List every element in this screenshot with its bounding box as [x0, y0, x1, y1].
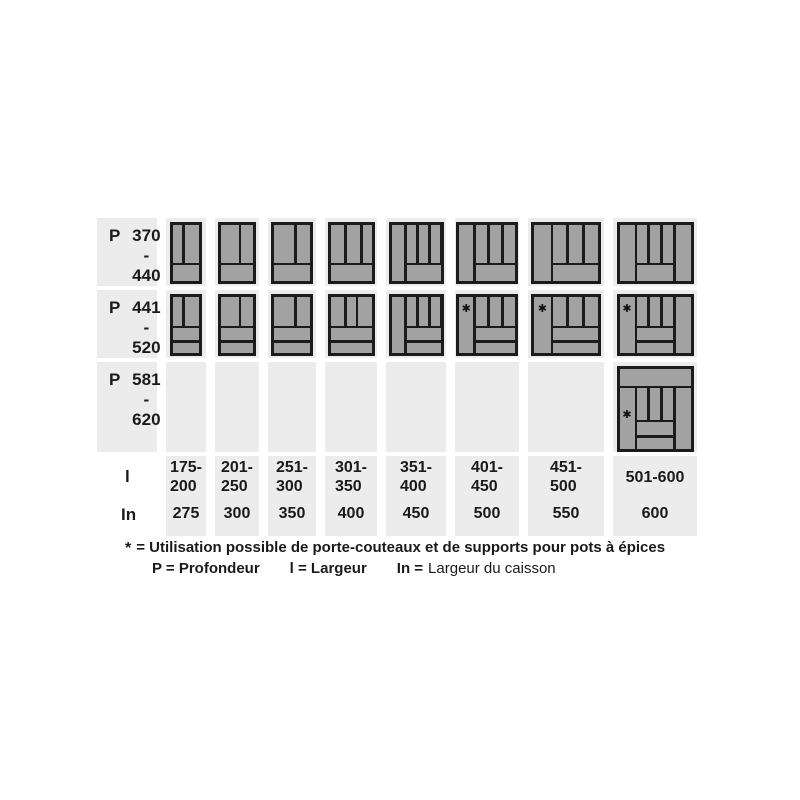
- legend-term: l = Largeur: [290, 560, 367, 577]
- tray-vertical-compartments: [476, 297, 515, 326]
- tray-bottom-compartment: [637, 265, 673, 281]
- tray-compartment: [241, 297, 253, 326]
- tray-compartment: [221, 225, 239, 263]
- asterisk-marker: *: [125, 540, 131, 557]
- dimension-cell: 351-400450: [386, 456, 446, 536]
- tray-compartment: [347, 297, 356, 326]
- dimension-row-labels: lIn: [97, 456, 157, 536]
- tray-body: [459, 225, 515, 281]
- tray-body: [274, 297, 310, 353]
- tray-middle-section: [221, 225, 253, 281]
- cutlery-tray-diagram: [617, 222, 694, 284]
- depth-values: 370-440: [130, 226, 162, 286]
- tray-compartment: [663, 388, 673, 419]
- catalog-page: P370-440P441-520✱✱✱P581-620✱lIn175-20027…: [0, 0, 800, 800]
- depth-value-line: -: [130, 318, 162, 338]
- tray-bottom-compartment: [637, 422, 673, 435]
- cabinet-width-row-label: In: [121, 505, 136, 525]
- cutlery-tray-diagram: ✱: [617, 366, 694, 452]
- tray-compartment: [419, 297, 429, 326]
- legend-term: P = Profondeur: [152, 560, 260, 577]
- dimension-cell: 175-200275: [166, 456, 206, 536]
- tray-body: ✱: [620, 388, 691, 449]
- cutlery-tray-diagram: [271, 222, 313, 284]
- tray-compartment: [476, 297, 487, 326]
- footnote: *= Utilisation possible de porte-couteau…: [125, 539, 665, 558]
- tray-compartment: [407, 297, 417, 326]
- tray-body: [274, 225, 310, 281]
- table-cell: [268, 218, 316, 286]
- tray-compartment: [490, 297, 501, 326]
- tray-middle-section: [173, 225, 199, 281]
- legend-term: In =: [397, 560, 423, 577]
- depth-prefix-label: P: [109, 370, 120, 390]
- cutlery-tray-diagram: ✱: [531, 294, 601, 356]
- tray-middle-section: [331, 225, 372, 281]
- tray-vertical-compartments: [331, 225, 372, 263]
- dimension-cell: 451-500550: [528, 456, 604, 536]
- tray-left-column-compartment: [459, 225, 473, 281]
- table-cell: [325, 362, 377, 452]
- tray-compartment: [331, 225, 345, 263]
- tray-vertical-compartments: [407, 297, 441, 326]
- width-range-text: 351-400: [400, 458, 432, 496]
- tray-bottom-compartment: [476, 328, 515, 340]
- tray-body: [173, 297, 199, 353]
- tray-compartment: [297, 297, 310, 326]
- tray-compartment: [663, 225, 673, 263]
- tray-middle-section: [274, 297, 310, 353]
- tray-middle-section: [476, 225, 515, 281]
- cutlery-tray-diagram: ✱: [617, 294, 694, 356]
- tray-bottom-compartment: [553, 328, 598, 340]
- table-cell: [386, 218, 446, 286]
- cabinet-width-value: 600: [613, 505, 697, 523]
- tray-compartment: [185, 297, 199, 326]
- tray-compartment: [585, 225, 598, 263]
- legend-entry: In =Largeur du caisson: [397, 560, 556, 577]
- tray-bottom-compartment: [637, 343, 673, 353]
- tray-body: ✱: [459, 297, 515, 353]
- tray-bottom-compartment: [637, 328, 673, 340]
- depth-value-line: 620: [130, 410, 162, 430]
- tray-compartment: [585, 297, 598, 326]
- tray-compartment: [569, 225, 582, 263]
- cutlery-tray-diagram: ✱: [456, 294, 518, 356]
- cutlery-tray-diagram: [170, 294, 202, 356]
- tray-vertical-compartments: [274, 297, 310, 326]
- cabinet-width-value: 275: [166, 505, 206, 523]
- tray-middle-section: [637, 297, 673, 353]
- tray-vertical-compartments: [331, 297, 372, 326]
- cutlery-tray-size-table: P370-440P441-520✱✱✱P581-620✱lIn175-20027…: [97, 218, 697, 536]
- dimension-cell: 301-350400: [325, 456, 377, 536]
- tray-compartment: [297, 225, 310, 263]
- table-cell: [166, 218, 206, 286]
- depth-range-label: P441-520: [97, 290, 157, 358]
- knife-holder-asterisk-icon: ✱: [620, 409, 635, 420]
- dimension-cell: 201-250300: [215, 456, 259, 536]
- tray-middle-section: [476, 297, 515, 353]
- width-range-text: 251-300: [276, 458, 308, 496]
- tray-vertical-compartments: [476, 225, 515, 263]
- tray-bottom-compartment: [407, 265, 441, 281]
- table-cell: [268, 362, 316, 452]
- tray-middle-section: [553, 225, 598, 281]
- depth-value-line: -: [130, 390, 162, 410]
- width-range-value: 251-300: [268, 458, 316, 496]
- cutlery-tray-diagram: [456, 222, 518, 284]
- width-range-text: 501-600: [626, 468, 685, 487]
- tray-body: [620, 225, 691, 281]
- table-cell: [528, 218, 604, 286]
- tray-body: [392, 225, 441, 281]
- tray-bottom-compartment: [173, 328, 199, 340]
- tray-bottom-compartment: [553, 343, 598, 353]
- tray-compartment: [504, 297, 515, 326]
- tray-vertical-compartments: [173, 225, 199, 263]
- tray-right-column-compartment: [676, 297, 691, 353]
- tray-vertical-compartments: [553, 297, 598, 326]
- tray-body: [331, 225, 372, 281]
- cabinet-width-value: 350: [268, 505, 316, 523]
- width-range-value: 501-600: [613, 468, 697, 487]
- tray-compartment: [358, 297, 372, 326]
- tray-compartment: [363, 225, 372, 263]
- cutlery-tray-diagram: [170, 222, 202, 284]
- tray-compartment: [504, 225, 515, 263]
- tray-bottom-compartment: [331, 343, 372, 353]
- width-range-value: 175-200: [166, 458, 206, 496]
- tray-compartment: [347, 225, 361, 263]
- width-range-value: 201-250: [215, 458, 259, 496]
- tray-bottom-compartment: [331, 328, 372, 340]
- tray-compartment: [173, 225, 182, 263]
- depth-value-line: 441: [130, 298, 162, 318]
- cutlery-tray-diagram: [218, 222, 256, 284]
- tray-compartment: [173, 297, 182, 326]
- tray-left-column-compartment: ✱: [534, 297, 551, 353]
- tray-bottom-compartment: [221, 328, 253, 340]
- tray-compartment: [185, 225, 199, 263]
- tray-compartment: [490, 225, 501, 263]
- cutlery-tray-diagram: [389, 222, 444, 284]
- cutlery-tray-diagram: [328, 294, 375, 356]
- knife-holder-asterisk-icon: ✱: [459, 303, 473, 314]
- tray-bottom-compartment: [407, 343, 441, 353]
- tray-middle-section: [637, 388, 673, 449]
- width-range-text: 401-450: [471, 458, 503, 496]
- table-cell: ✱: [613, 362, 697, 452]
- depth-value-line: -: [130, 246, 162, 266]
- tray-left-column-compartment: ✱: [459, 297, 473, 353]
- tray-middle-section: [637, 225, 673, 281]
- tray-top-compartment: [620, 369, 691, 386]
- cabinet-width-value: 300: [215, 505, 259, 523]
- dimension-cell: 401-450500: [455, 456, 519, 536]
- tray-vertical-compartments: [274, 225, 310, 263]
- width-range-value: 401-450: [455, 458, 519, 496]
- tray-left-column-compartment: [534, 225, 551, 281]
- table-cell: [166, 290, 206, 358]
- table-cell: ✱: [455, 290, 519, 358]
- tray-bottom-compartment: [221, 265, 253, 281]
- tray-vertical-compartments: [637, 225, 673, 263]
- table-cell: [528, 362, 604, 452]
- width-range-text: 175-200: [170, 458, 202, 496]
- depth-value-line: 581: [130, 370, 162, 390]
- depth-value-line: 520: [130, 338, 162, 358]
- cutlery-tray-diagram: [328, 222, 375, 284]
- tray-vertical-compartments: [637, 388, 673, 419]
- tray-body: [534, 225, 598, 281]
- legend-entry: l = Largeur: [290, 560, 367, 577]
- tray-vertical-compartments: [637, 297, 673, 326]
- tray-left-column-compartment: ✱: [620, 388, 635, 449]
- width-range-value: 451-500: [528, 458, 604, 496]
- table-cell: [613, 218, 697, 286]
- tray-bottom-compartment: [407, 328, 441, 340]
- tray-body: [221, 297, 253, 353]
- depth-value-line: 440: [130, 266, 162, 286]
- knife-holder-asterisk-icon: ✱: [534, 303, 551, 314]
- tray-left-column-compartment: ✱: [620, 297, 635, 353]
- tray-middle-section: [331, 297, 372, 353]
- footnote-text: = Utilisation possible de porte-couteaux…: [136, 539, 665, 556]
- tray-compartment: [419, 225, 429, 263]
- tray-middle-section: [173, 297, 199, 353]
- width-range-value: 351-400: [386, 458, 446, 496]
- tray-bottom-compartment: [221, 343, 253, 353]
- cabinet-width-value: 500: [455, 505, 519, 523]
- tray-compartment: [221, 297, 239, 326]
- table-cell: ✱: [613, 290, 697, 358]
- legend-entry: P = Profondeur: [152, 560, 260, 577]
- depth-range-label: P581-620: [97, 362, 157, 452]
- tray-vertical-compartments: [173, 297, 199, 326]
- tray-body: [392, 297, 441, 353]
- table-cell: [166, 362, 206, 452]
- tray-middle-section: [407, 297, 441, 353]
- tray-bottom-compartment: [476, 343, 515, 353]
- cabinet-width-value: 400: [325, 505, 377, 523]
- tray-right-column-compartment: [676, 225, 691, 281]
- tray-bottom-compartment: [173, 265, 199, 281]
- tray-compartment: [650, 297, 660, 326]
- cutlery-tray-diagram: [389, 294, 444, 356]
- width-row-label: l: [125, 467, 130, 487]
- depth-prefix-label: P: [109, 226, 120, 246]
- table-cell: [455, 362, 519, 452]
- width-range-text: 201-250: [221, 458, 253, 496]
- depth-prefix-label: P: [109, 298, 120, 318]
- tray-bottom-compartment: [553, 265, 598, 281]
- tray-compartment: [407, 225, 417, 263]
- tray-left-column-compartment: [392, 225, 405, 281]
- tray-body: [331, 297, 372, 353]
- legend: P = Profondeurl = LargeurIn =Largeur du …: [152, 560, 586, 577]
- tray-right-column-compartment: [676, 388, 691, 449]
- tray-vertical-compartments: [553, 225, 598, 263]
- tray-compartment: [431, 225, 441, 263]
- tray-compartment: [637, 388, 647, 419]
- table-cell: ✱: [528, 290, 604, 358]
- tray-compartment: [637, 225, 647, 263]
- tray-bottom-compartment: [274, 265, 310, 281]
- tray-compartment: [331, 297, 345, 326]
- table-cell: [215, 362, 259, 452]
- tray-vertical-compartments: [221, 297, 253, 326]
- tray-bottom-compartment: [331, 265, 372, 281]
- cutlery-tray-diagram: [531, 222, 601, 284]
- tray-compartment: [431, 297, 441, 326]
- tray-left-column-compartment: [392, 297, 405, 353]
- width-range-value: 301-350: [325, 458, 377, 496]
- knife-holder-asterisk-icon: ✱: [620, 303, 635, 314]
- table-cell: [386, 290, 446, 358]
- legend-definition: Largeur du caisson: [428, 560, 556, 577]
- tray-body: ✱: [620, 297, 691, 353]
- tray-compartment: [274, 297, 294, 326]
- tray-compartment: [553, 297, 566, 326]
- table-cell: [455, 218, 519, 286]
- tray-body: [221, 225, 253, 281]
- tray-body: [173, 225, 199, 281]
- cabinet-width-value: 550: [528, 505, 604, 523]
- table-cell: [215, 218, 259, 286]
- tray-compartment: [637, 297, 647, 326]
- tray-compartment: [650, 388, 660, 419]
- tray-bottom-compartment: [274, 343, 310, 353]
- tray-compartment: [569, 297, 582, 326]
- depth-value-line: 370: [130, 226, 162, 246]
- width-range-text: 451-500: [550, 458, 582, 496]
- table-cell: [268, 290, 316, 358]
- tray-compartment: [663, 297, 673, 326]
- table-cell: [386, 362, 446, 452]
- tray-middle-section: [221, 297, 253, 353]
- tray-vertical-compartments: [407, 225, 441, 263]
- width-range-text: 301-350: [335, 458, 367, 496]
- tray-middle-section: [553, 297, 598, 353]
- tray-compartment: [241, 225, 253, 263]
- depth-values: 441-520: [130, 298, 162, 358]
- dimension-cell: 501-600600: [613, 456, 697, 536]
- tray-compartment: [553, 225, 566, 263]
- tray-bottom-compartment: [476, 265, 515, 281]
- table-cell: [325, 218, 377, 286]
- table-cell: [325, 290, 377, 358]
- tray-bottom-compartment: [274, 328, 310, 340]
- tray-bottom-compartment: [637, 438, 673, 449]
- tray-middle-section: [274, 225, 310, 281]
- tray-compartment: [476, 225, 487, 263]
- cutlery-tray-diagram: [218, 294, 256, 356]
- tray-left-column-compartment: [620, 225, 635, 281]
- tray-body: ✱: [534, 297, 598, 353]
- cabinet-width-value: 450: [386, 505, 446, 523]
- tray-vertical-compartments: [221, 225, 253, 263]
- tray-middle-section: [407, 225, 441, 281]
- dimension-cell: 251-300350: [268, 456, 316, 536]
- tray-bottom-compartment: [173, 343, 199, 353]
- depth-range-label: P370-440: [97, 218, 157, 286]
- table-cell: [215, 290, 259, 358]
- cutlery-tray-diagram: [271, 294, 313, 356]
- tray-compartment: [650, 225, 660, 263]
- depth-values: 581-620: [130, 370, 162, 430]
- tray-compartment: [274, 225, 294, 263]
